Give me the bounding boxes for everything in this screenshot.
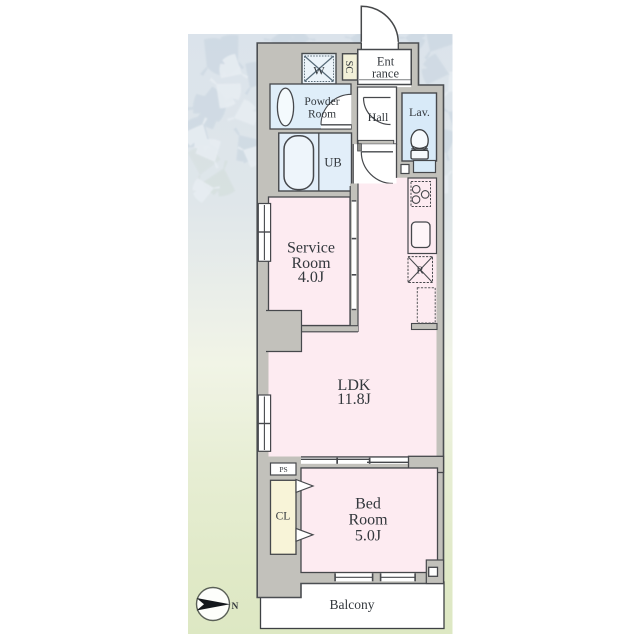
svg-text:Hall: Hall [368, 110, 389, 124]
svg-text:Room: Room [348, 512, 388, 529]
svg-text:11.8J: 11.8J [337, 391, 371, 408]
svg-text:Powder: Powder [304, 96, 339, 108]
svg-text:rance: rance [372, 67, 400, 81]
svg-text:Room: Room [308, 109, 336, 121]
svg-text:W: W [313, 64, 325, 78]
svg-text:4.0J: 4.0J [298, 269, 324, 286]
svg-text:Service: Service [287, 240, 335, 257]
svg-text:SC: SC [343, 60, 354, 73]
svg-text:Bed: Bed [355, 496, 381, 513]
svg-text:UB: UB [324, 156, 341, 170]
svg-text:Lav.: Lav. [409, 105, 430, 119]
svg-text:CL: CL [276, 511, 291, 523]
svg-text:R: R [416, 265, 424, 277]
svg-text:5.0J: 5.0J [355, 528, 381, 545]
svg-text:N: N [232, 602, 239, 612]
svg-text:PS: PS [279, 465, 287, 474]
svg-text:Balcony: Balcony [330, 597, 375, 612]
